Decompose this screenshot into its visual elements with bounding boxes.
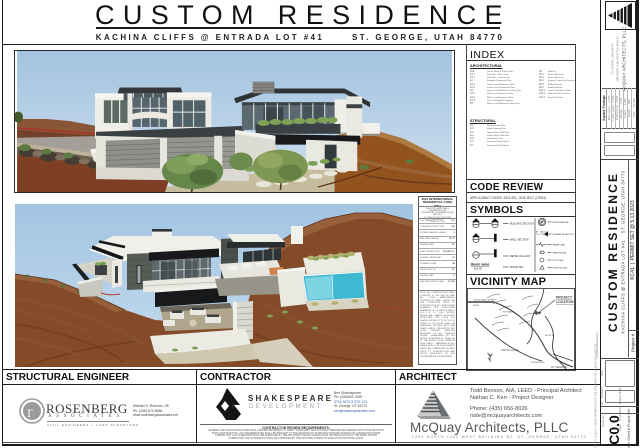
svg-text:KEYNOTE TAG: KEYNOTE TAG xyxy=(553,266,568,269)
svg-text:DOOR TAG: DOOR TAG xyxy=(553,259,564,262)
svg-text:BUILDING SECTION: BUILDING SECTION xyxy=(510,222,534,225)
svg-text:WALL SECTION: WALL SECTION xyxy=(510,238,529,241)
svg-text:LOCATION: LOCATION xyxy=(556,300,574,304)
svg-text:BLUFF ST: BLUFF ST xyxy=(545,335,555,337)
svg-text:BREAK LINE: BREAK LINE xyxy=(553,243,566,246)
svg-text:SUNSET BLVD: SUNSET BLVD xyxy=(531,362,545,364)
svg-text:NORTH ARROW: NORTH ARROW xyxy=(553,221,569,224)
svg-text:T.O. CONC: T.O. CONC xyxy=(536,234,547,236)
svg-text:SANTA CLARA: SANTA CLARA xyxy=(501,348,519,352)
svg-text:r: r xyxy=(27,402,33,421)
svg-text:100 SF: 100 SF xyxy=(474,268,483,271)
svg-text:SNOW CANYON PKWY: SNOW CANYON PKWY xyxy=(474,299,496,302)
svg-text:PROJECT: PROJECT xyxy=(556,296,573,300)
svg-text:Room name: Room name xyxy=(471,263,489,267)
svg-text:ENTRADA: ENTRADA xyxy=(503,311,513,314)
svg-text:ELEVATION CALLOUT: ELEVATION CALLOUT xyxy=(553,233,575,236)
svg-text:WINDOW TAG: WINDOW TAG xyxy=(553,251,567,254)
svg-text:EL: 100'-0": EL: 100'-0" xyxy=(536,231,546,233)
svg-text:N: N xyxy=(541,220,543,224)
svg-text:DRIVE: DRIVE xyxy=(473,305,480,307)
svg-text:DETAIL CALLOUT: DETAIL CALLOUT xyxy=(510,255,531,258)
svg-text:ROOM TAG: ROOM TAG xyxy=(510,266,523,269)
